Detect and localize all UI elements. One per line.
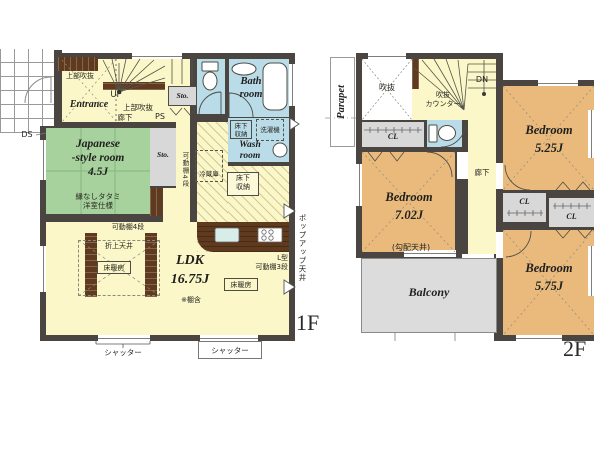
- f1-floor-label: 1F: [296, 310, 319, 336]
- f2-parapet-label: Parapet: [330, 57, 355, 147]
- window: [588, 110, 594, 158]
- f1-stair-landing-band: [103, 82, 165, 90]
- f1-floor-heating-label-left: 床暖房: [97, 264, 131, 273]
- f2-toilet-room: [427, 120, 462, 147]
- f1-upper-void-label-entrance: 上部吹抜: [58, 72, 102, 81]
- window: [516, 335, 562, 341]
- f1-japanese-room-label: Japanese -style room 4.5J: [50, 138, 146, 179]
- f1-bath-room-label: Bath room: [230, 76, 272, 101]
- f1-washer-label: 洗濯機: [256, 126, 284, 134]
- window: [356, 164, 362, 206]
- f1-floor-heating-label-right: 床暖房: [224, 281, 258, 290]
- f2-closet-a-label: CL: [503, 197, 546, 207]
- f2-bedroom2-label: Bedroom 5.25J: [511, 122, 587, 157]
- f2-closet-b-label: CL: [549, 212, 594, 222]
- window: [98, 335, 150, 341]
- f2-dn-label: DN: [470, 75, 494, 85]
- f1-entrance-wood-cabinet: [58, 57, 98, 71]
- wash-line1: Wash: [228, 140, 272, 151]
- f2-floor-label: 2F: [563, 336, 586, 362]
- f1-closet-wood-pillar: [150, 188, 162, 216]
- f2-bedroom3-label: Bedroom 5.75J: [511, 260, 587, 295]
- wash-line2: room: [228, 151, 272, 162]
- door-opening: [457, 152, 468, 179]
- f2-hallway-label: 廊下: [468, 168, 496, 177]
- f1-storage-label-closet: Sto.: [150, 150, 176, 159]
- f1-kitchen-counter: [197, 222, 289, 252]
- f1-storage-label-stairs: Sto.: [168, 91, 197, 100]
- f1-ps-label: PS: [150, 112, 170, 122]
- floorplan-canvas: 上部吹抜 Entrance UP 上部吹抜 Sto. 廊下 PS DS Bath…: [0, 0, 600, 449]
- f1-fridge-label: 冷蔵庫: [194, 170, 224, 178]
- f2-stair-wood-strip: [412, 59, 419, 89]
- f1-popup-ceiling-label: ポップアップ天井: [293, 214, 307, 278]
- shutter-bracket: [96, 341, 150, 348]
- door-opening: [496, 232, 503, 258]
- window: [132, 53, 182, 59]
- window: [40, 140, 46, 180]
- f2-slope-ceiling-label: (勾配天井): [378, 243, 444, 253]
- window: [289, 64, 295, 106]
- f2-balcony-label: Balcony: [398, 285, 460, 299]
- f1-ldk-note-label: ※棚含: [176, 296, 206, 305]
- window: [368, 53, 406, 59]
- f1-underfloor-label-kitchen: 床下 収納: [227, 174, 259, 192]
- f2-closet-top-label: CL: [362, 132, 424, 142]
- f1-up-label: UP: [104, 90, 128, 101]
- f1-entrance-label: Entrance: [62, 99, 116, 111]
- f1-shutter-label-left: シャッター: [94, 348, 152, 357]
- f1-shelf3-label: L型 可動棚3段: [232, 254, 288, 272]
- f1-shelf4-label-vertical: 可動棚4段: [177, 144, 189, 196]
- f2-void-label: 吹抜: [364, 83, 410, 93]
- f2-void-counter-label: 吹抜 カウンター: [416, 91, 470, 109]
- door-opening: [496, 163, 503, 189]
- f1-entrance-porch-tiles: [0, 49, 54, 133]
- f1-shelf4-label-horizontal: 可動棚4段: [100, 223, 156, 232]
- window: [40, 246, 46, 292]
- f2-stairs: [412, 59, 468, 120]
- f1-hallway-label: 廊下: [110, 113, 140, 122]
- bath-line1: Bath: [230, 76, 272, 89]
- f1-underfloor-label-wash: 床下 収納: [230, 122, 252, 138]
- window: [538, 80, 578, 86]
- f1-coffered-ceiling-label: 折上天井: [78, 242, 160, 251]
- f1-upper-void-label-stairs: 上部吹抜: [114, 103, 162, 112]
- f1-toilet-room: [197, 59, 225, 114]
- f2-top-right-notch: [503, 45, 600, 80]
- f1-ldk-label: LDK 16.75J: [152, 252, 228, 290]
- f1-wash-room-label: Wash room: [228, 140, 272, 163]
- f1-shutter-label-right: シャッター: [198, 346, 262, 355]
- parapet-text: Parapet: [336, 85, 349, 119]
- f1-tatami-note-label: 縁なしタタミ 洋室仕様: [60, 192, 136, 211]
- f2-hallway: [468, 59, 496, 254]
- f1-ds-label: DS: [18, 130, 36, 140]
- bath-line2: room: [230, 89, 272, 102]
- window: [588, 246, 594, 296]
- f2-bedroom1-label: Bedroom 7.02J: [374, 189, 444, 224]
